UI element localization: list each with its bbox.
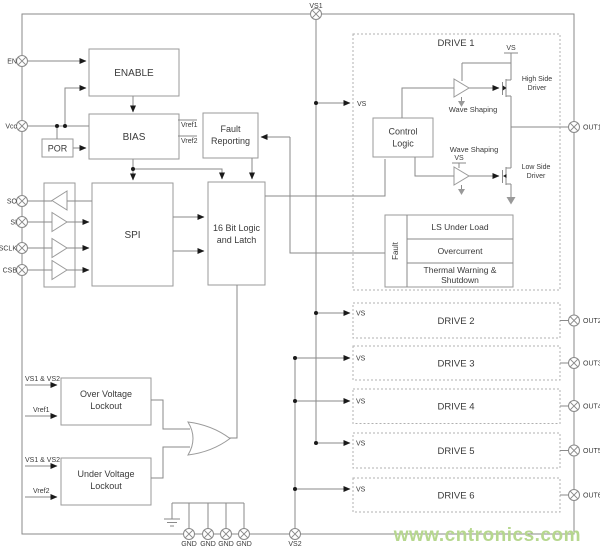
drive6-title: DRIVE 6 bbox=[438, 491, 475, 502]
ovl-label-2: Lockout bbox=[90, 401, 122, 411]
logic16-label-1: 16 Bit Logic bbox=[213, 223, 261, 233]
control-logic-block bbox=[373, 118, 433, 157]
logic16-block bbox=[208, 182, 265, 285]
bias-logic16-wire bbox=[133, 169, 222, 179]
pin-gnd-1 bbox=[184, 529, 195, 540]
drive2-vs-label: VS bbox=[356, 311, 366, 318]
control-logic-label-1: Control bbox=[388, 127, 417, 137]
fault-row-3a: Thermal Warning & bbox=[424, 265, 497, 275]
or-logic16-wire bbox=[229, 285, 237, 438]
pin-csb bbox=[17, 265, 28, 276]
fault-table-label: Fault bbox=[391, 241, 400, 260]
pin-label-vcc: Vcc bbox=[5, 124, 17, 131]
pin-gnd-3 bbox=[221, 529, 232, 540]
pin-label-gnd3: GND bbox=[218, 541, 234, 548]
pin-gnd-2 bbox=[203, 529, 214, 540]
drive3-title: DRIVE 3 bbox=[438, 359, 475, 370]
por-label: POR bbox=[48, 144, 68, 154]
drive5-title: DRIVE 5 bbox=[438, 446, 475, 457]
or-gate bbox=[188, 422, 230, 455]
vcc-enable-wire bbox=[65, 88, 86, 126]
pin-sclk bbox=[17, 243, 28, 254]
pin-out6 bbox=[569, 490, 580, 501]
pin-vcc bbox=[17, 121, 28, 132]
uvl-label-2: Lockout bbox=[90, 481, 122, 491]
ovl-or-wire bbox=[151, 400, 190, 429]
ovl-in1-label: VS1 & VS2 bbox=[25, 376, 60, 383]
spi-label: SPI bbox=[124, 230, 140, 241]
pin-en bbox=[17, 56, 28, 67]
pin-label-out4: OUT4 bbox=[583, 404, 600, 411]
pin-label-out1: OUT1 bbox=[583, 125, 600, 132]
fault-reporting-label-2: Reporting bbox=[211, 136, 250, 146]
block-diagram: VS1 EN Vcc SO SI SCLK CSB GND GND GND GN… bbox=[0, 0, 600, 550]
uvl-or-wire bbox=[151, 447, 190, 478]
pin-out4 bbox=[569, 401, 580, 412]
drive1-title: DRIVE 1 bbox=[438, 38, 475, 49]
wave-shaping-low-label: Wave Shaping bbox=[450, 145, 499, 154]
fault-row-1: LS Under Load bbox=[431, 222, 488, 232]
pin-gnd-4 bbox=[239, 529, 250, 540]
pin-so bbox=[17, 196, 28, 207]
pin-out2 bbox=[569, 315, 580, 326]
pin-label-sclk: SCLK bbox=[0, 246, 17, 253]
pin-label-vs2: VS2 bbox=[288, 541, 301, 548]
pin-label-vs1: VS1 bbox=[309, 3, 322, 10]
drive1-vs-label: VS bbox=[357, 101, 367, 108]
drive4-title: DRIVE 4 bbox=[438, 402, 475, 413]
pin-label-si: SI bbox=[10, 220, 17, 227]
diagram-canvas: VS1 EN Vcc SO SI SCLK CSB GND GND GND GN… bbox=[0, 0, 600, 550]
vs-rail-low-label: VS bbox=[454, 155, 464, 162]
bias-label: BIAS bbox=[123, 132, 146, 143]
enable-label: ENABLE bbox=[114, 68, 154, 79]
pin-label-gnd4: GND bbox=[236, 541, 252, 548]
pin-out5 bbox=[569, 445, 580, 456]
drive5-vs-label: VS bbox=[356, 441, 366, 448]
ovl-label-1: Over Voltage bbox=[80, 389, 132, 399]
pin-label-out6: OUT6 bbox=[583, 493, 600, 500]
pin-out1 bbox=[569, 122, 580, 133]
fault-row-2: Overcurrent bbox=[438, 246, 484, 256]
high-side-driver-label-1: High Side bbox=[522, 76, 552, 83]
logic16-label-2: and Latch bbox=[217, 235, 257, 245]
control-logic-label-2: Logic bbox=[392, 139, 414, 149]
pin-label-en: EN bbox=[7, 59, 17, 66]
pin-label-csb: CSB bbox=[3, 268, 18, 275]
fault-row-3b: Shutdown bbox=[441, 275, 479, 285]
watermark-text: www.cntronics.com bbox=[393, 525, 581, 546]
pin-label-so: SO bbox=[7, 199, 18, 206]
pin-label-out3: OUT3 bbox=[583, 361, 600, 368]
uvl-in2-label: Vref2 bbox=[33, 488, 50, 495]
vs-rail-high-label: VS bbox=[506, 45, 516, 52]
drive6-vs-label: VS bbox=[356, 487, 366, 494]
wave-shaping-high-label: Wave Shaping bbox=[449, 105, 498, 114]
pin-label-gnd1: GND bbox=[181, 541, 197, 548]
drive2-title: DRIVE 2 bbox=[438, 316, 475, 327]
high-side-driver-label-2: Driver bbox=[528, 85, 547, 92]
pin-si bbox=[17, 217, 28, 228]
uvl-in1-label: VS1 & VS2 bbox=[25, 457, 60, 464]
pin-vs1 bbox=[311, 9, 322, 20]
low-side-driver-label-1: Low Side bbox=[522, 164, 551, 171]
pin-label-out2: OUT2 bbox=[583, 318, 600, 325]
low-side-driver-label-2: Driver bbox=[527, 173, 546, 180]
vref2-out-label: Vref2 bbox=[181, 138, 198, 145]
ground-symbol bbox=[164, 503, 180, 526]
vref1-out-label: Vref1 bbox=[181, 122, 198, 129]
pin-label-out5: OUT5 bbox=[583, 448, 600, 455]
ovl-in2-label: Vref1 bbox=[33, 407, 50, 414]
drive4-vs-label: VS bbox=[356, 399, 366, 406]
pin-label-gnd2: GND bbox=[200, 541, 216, 548]
pin-out3 bbox=[569, 358, 580, 369]
fault-reporting-label-1: Fault bbox=[220, 124, 241, 134]
drive3-vs-label: VS bbox=[356, 356, 366, 363]
uvl-label-1: Under Voltage bbox=[77, 469, 134, 479]
pin-vs2 bbox=[290, 529, 301, 540]
